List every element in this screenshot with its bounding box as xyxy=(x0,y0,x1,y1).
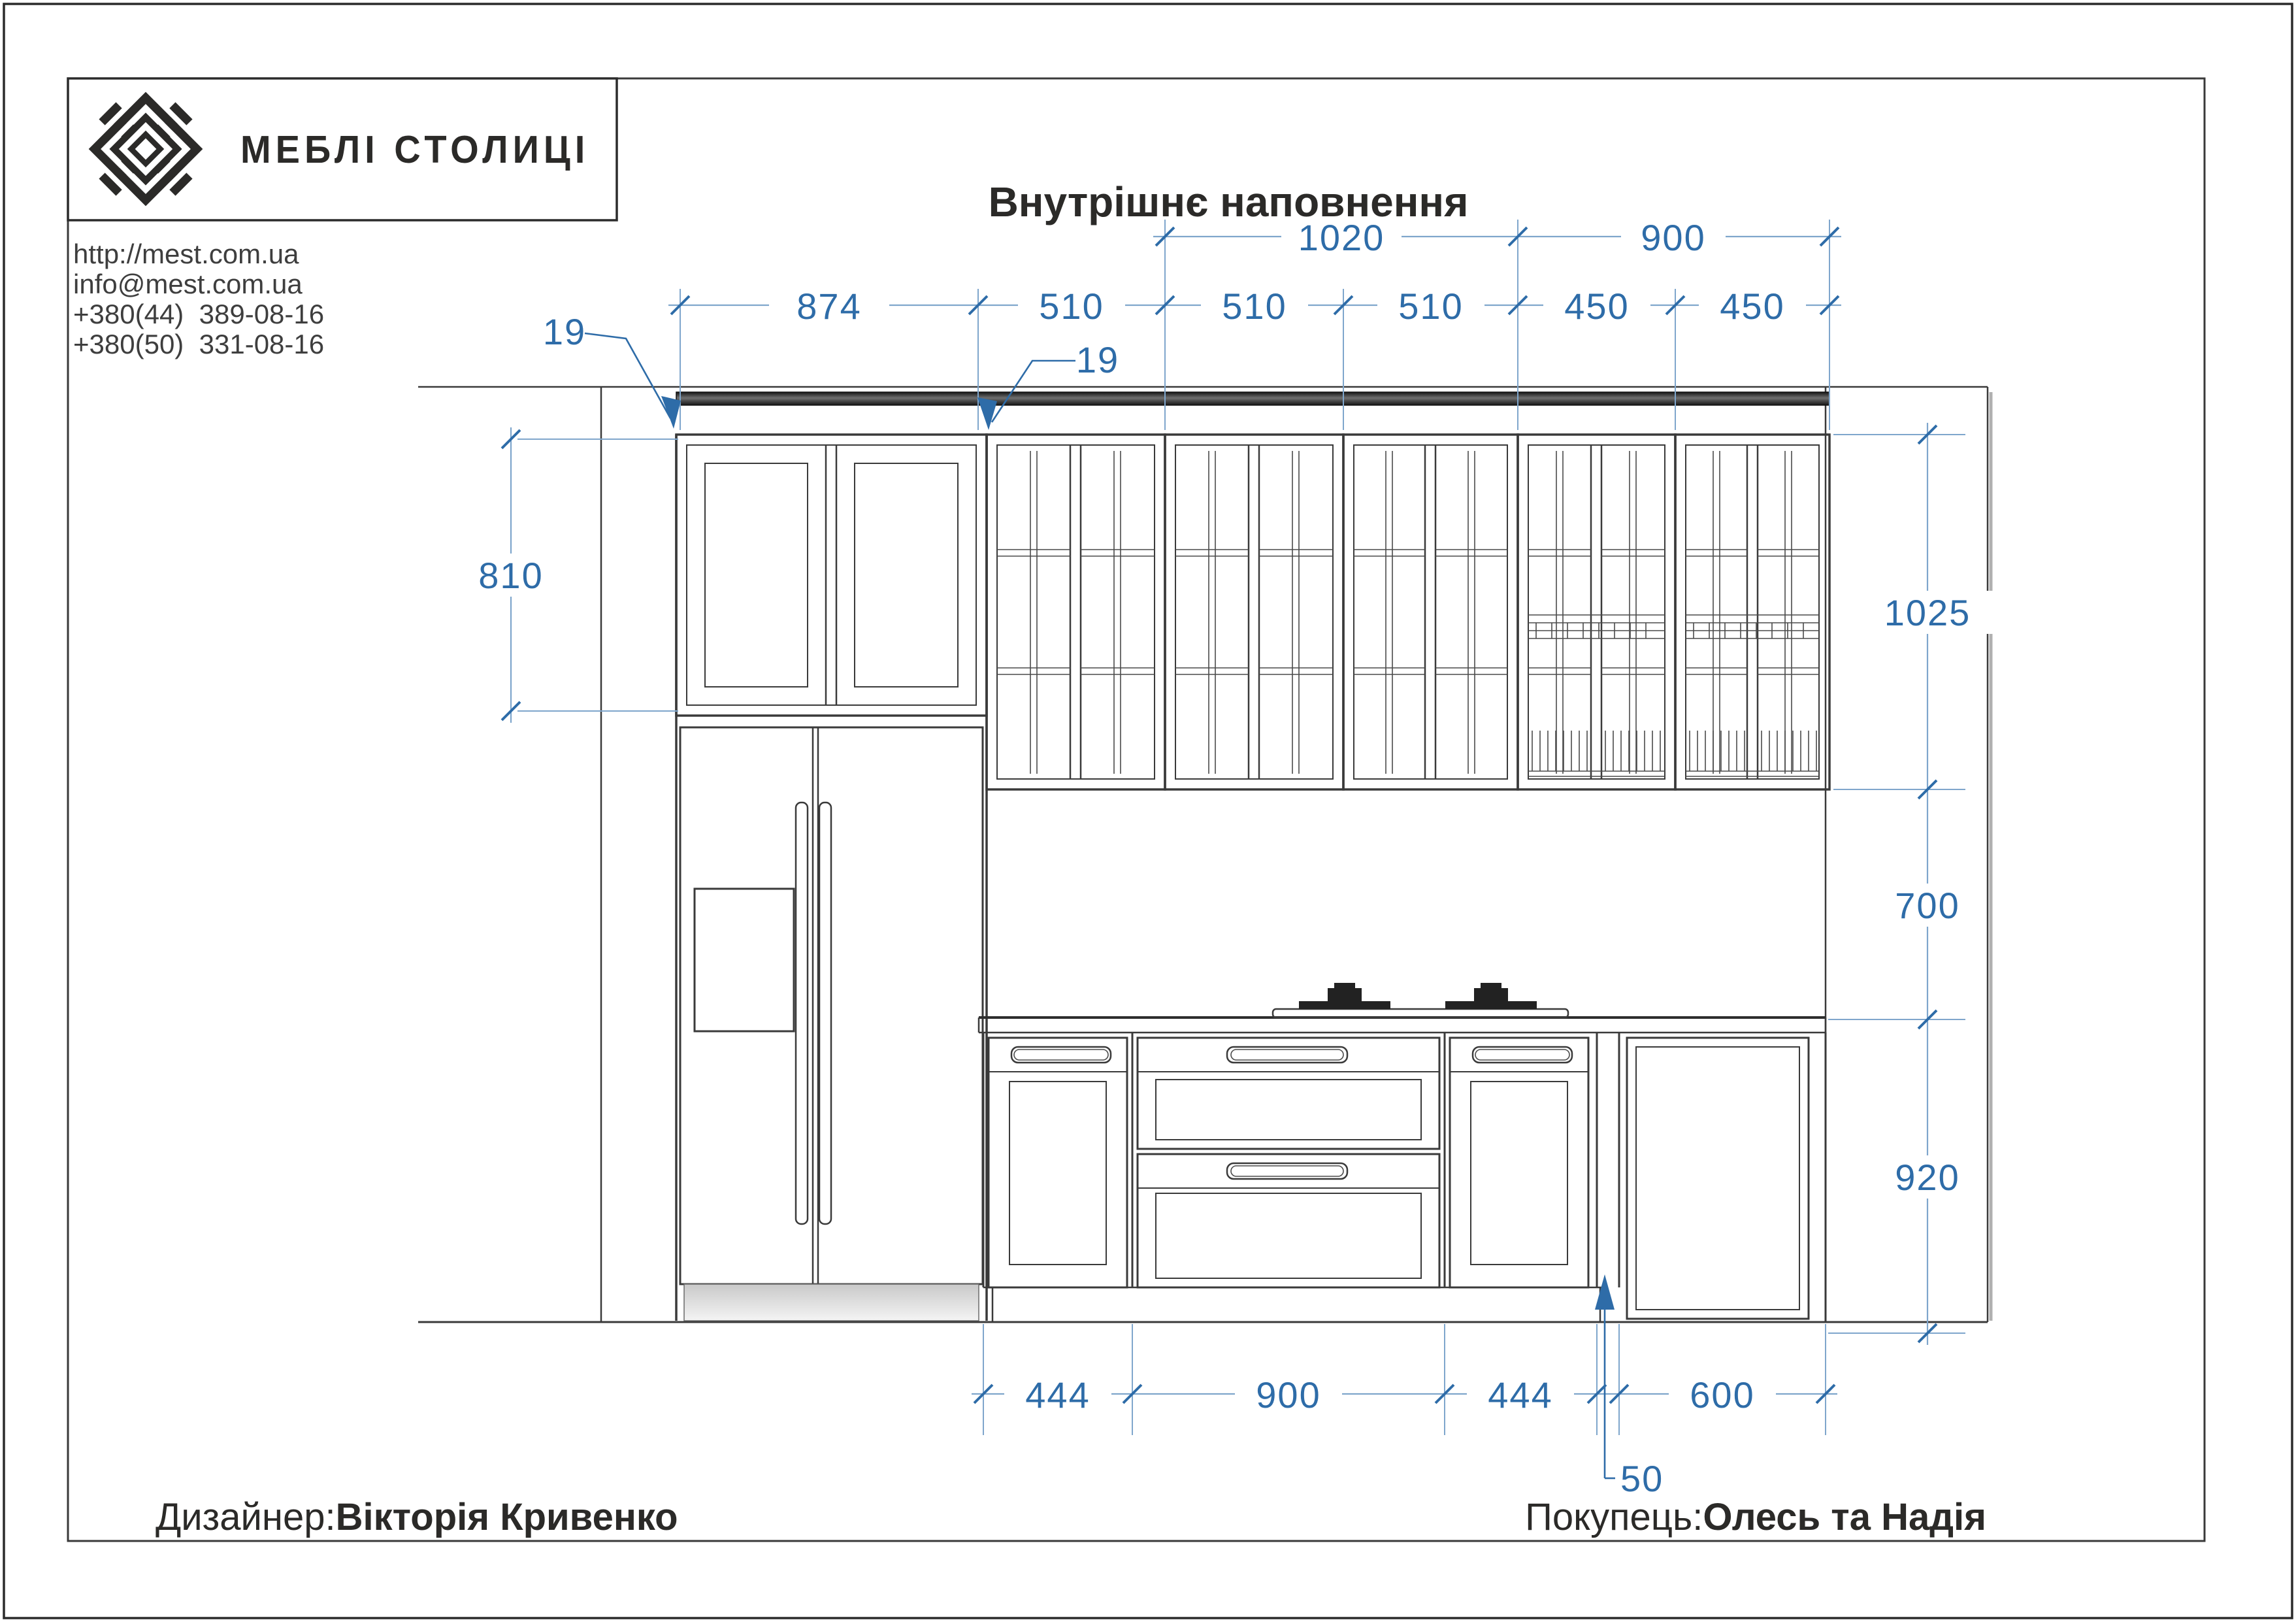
wall-outline xyxy=(418,387,1988,1322)
fridge-plinth xyxy=(684,1284,979,1321)
dim-label-444-left: 444 xyxy=(1025,1374,1090,1415)
dim-label-444-right: 444 xyxy=(1488,1374,1552,1415)
company-phone-1: +380(44) 389-08-16 xyxy=(73,299,324,329)
wall-cabinet-510-3 xyxy=(1343,435,1518,789)
page-title: Внутрішнє наповнення xyxy=(902,178,1555,226)
dim-row-units: 874 510 510 510 450 450 xyxy=(668,284,1841,327)
buyer-name: Олесь та Надія xyxy=(1703,1496,1986,1538)
panel-thickness-callout-right: 19 xyxy=(977,339,1119,430)
company-phone-2: +380(50) 331-08-16 xyxy=(73,329,324,359)
burner-grate-left xyxy=(1299,1001,1390,1009)
drawer-front-bottom xyxy=(1138,1154,1439,1287)
wall-cabinet-450-2 xyxy=(1675,435,1829,789)
company-logo-icon xyxy=(82,88,210,210)
drawer-front-top xyxy=(1138,1038,1439,1149)
fridge-dispenser-panel xyxy=(695,889,794,1031)
fridge-cabinet xyxy=(676,435,987,1321)
dim-label-874: 874 xyxy=(796,286,861,327)
tall-cabinet-upper-874 xyxy=(676,435,987,716)
kitchen-elevation-drawing: 1020 900 874 510 510 510 450 450 19 19 8… xyxy=(0,0,2296,1622)
footer-designer: Дизайнер:Вікторія Кривенко xyxy=(156,1495,678,1539)
wall-cabinet-510-1 xyxy=(987,435,1165,789)
dim-label-900-top: 900 xyxy=(1641,217,1705,258)
plinth xyxy=(983,1287,1604,1322)
burner-grate-right xyxy=(1445,1001,1537,1009)
wall-cabinet-510-2 xyxy=(1165,435,1343,789)
gas-cooktop xyxy=(1273,983,1568,1018)
filler-callout-50: 50 xyxy=(1595,1274,1664,1499)
countertop xyxy=(979,1018,1826,1033)
footer-buyer: Покупець:Олесь та Надія xyxy=(1437,1495,1986,1539)
fridge-handle-right xyxy=(819,803,831,1224)
dim-label-450-1: 450 xyxy=(1564,286,1629,327)
dim-label-600: 600 xyxy=(1690,1374,1754,1415)
company-email: info@mest.com.ua xyxy=(73,269,303,299)
dim-label-510-2: 510 xyxy=(1222,286,1287,327)
designer-label: Дизайнер: xyxy=(156,1496,336,1538)
base-cabinet-444-right xyxy=(1450,1038,1588,1287)
cornice-strip xyxy=(676,392,1829,405)
dim-label-19-right: 19 xyxy=(1076,339,1119,380)
dim-label-810: 810 xyxy=(478,555,543,596)
wall-cabinet-450-1 xyxy=(1518,435,1675,789)
fridge-handle-left xyxy=(796,803,808,1224)
dim-label-920: 920 xyxy=(1895,1157,1960,1198)
dim-label-1025: 1025 xyxy=(1884,592,1971,633)
dim-right-column: 1025 700 920 xyxy=(1860,423,1995,1345)
base-unit-600 xyxy=(1627,1038,1809,1319)
dim-left-810: 810 xyxy=(463,427,559,723)
dim-label-50: 50 xyxy=(1620,1458,1664,1499)
plate-rack-comb xyxy=(1528,731,1665,776)
buyer-label: Покупець: xyxy=(1525,1496,1703,1538)
plate-rack-comb xyxy=(1686,731,1819,776)
plate-rack-shelf xyxy=(1528,615,1665,638)
plate-rack-shelf xyxy=(1686,615,1819,638)
base-cabinet-444-left xyxy=(989,1038,1127,1287)
dim-label-19-left: 19 xyxy=(543,311,586,352)
page-frame-outer xyxy=(4,4,2292,1618)
dim-label-900-base: 900 xyxy=(1256,1374,1320,1415)
dim-label-700: 700 xyxy=(1895,885,1960,926)
dim-label-510-1: 510 xyxy=(1039,286,1104,327)
dim-label-510-3: 510 xyxy=(1398,286,1463,327)
drawer-unit-900 xyxy=(1138,1038,1439,1287)
dim-row-base: 444 900 444 600 xyxy=(972,1373,1837,1415)
designer-name: Вікторія Кривенко xyxy=(336,1496,678,1538)
panel-thickness-callout-left: 19 xyxy=(543,311,681,429)
company-website: http://mest.com.ua xyxy=(73,239,299,269)
company-name: МЕБЛІ СТОЛИЦІ xyxy=(240,127,589,172)
dim-label-450-2: 450 xyxy=(1720,286,1784,327)
